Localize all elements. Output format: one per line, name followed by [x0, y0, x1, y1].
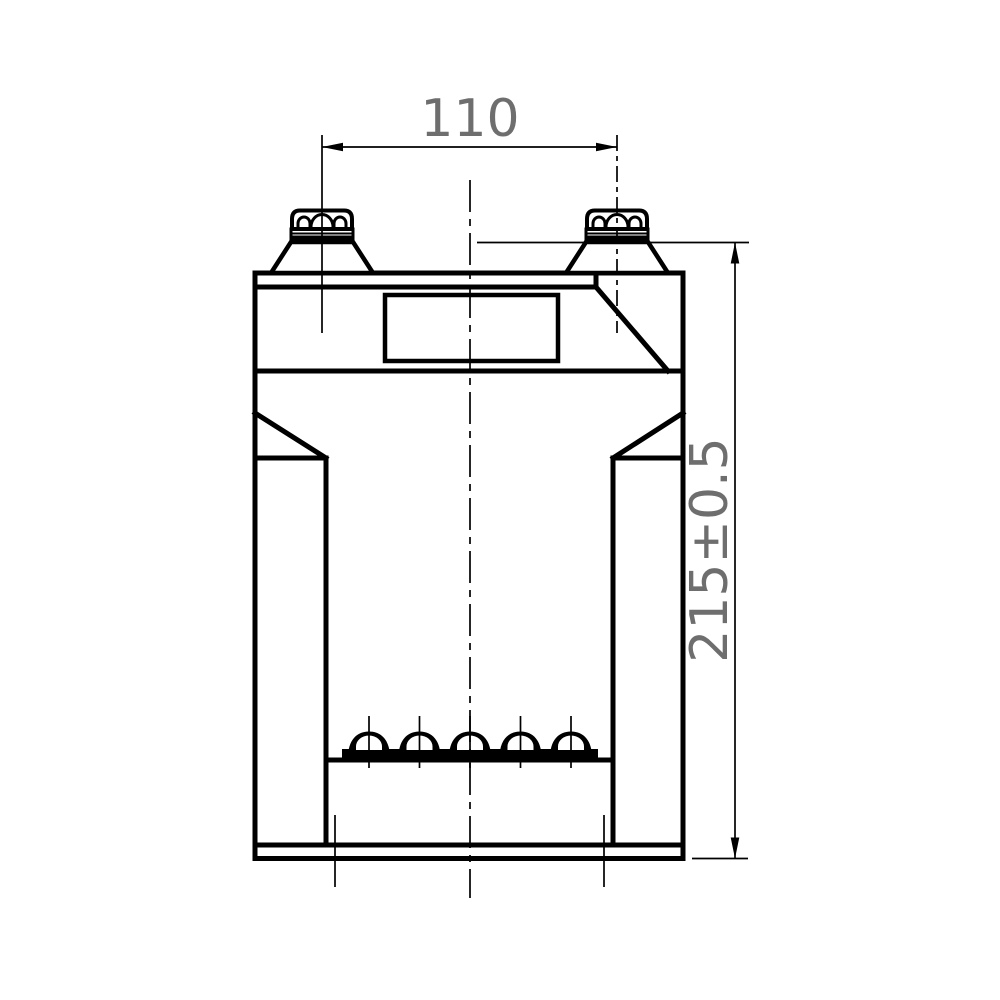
- drawing-sheet: 110 215±0.5: [0, 0, 1000, 1000]
- device-body: [255, 273, 683, 859]
- waist-left-edges: [255, 413, 326, 845]
- dimension-height-label: 215±0.5: [680, 437, 740, 663]
- centerlines: [322, 135, 617, 898]
- dim-height-arrow-bottom: [731, 838, 740, 859]
- technical-drawing-canvas: 110 215±0.5: [0, 0, 1000, 1000]
- waist-right-edges: [613, 413, 683, 845]
- dimension-width: 110: [322, 89, 617, 151]
- dim-height-arrow-top: [731, 243, 740, 264]
- dim-width-arrow-right: [596, 143, 617, 152]
- nameplate: [385, 295, 558, 361]
- dimension-width-label: 110: [420, 89, 519, 149]
- dim-width-arrow-left: [322, 143, 343, 152]
